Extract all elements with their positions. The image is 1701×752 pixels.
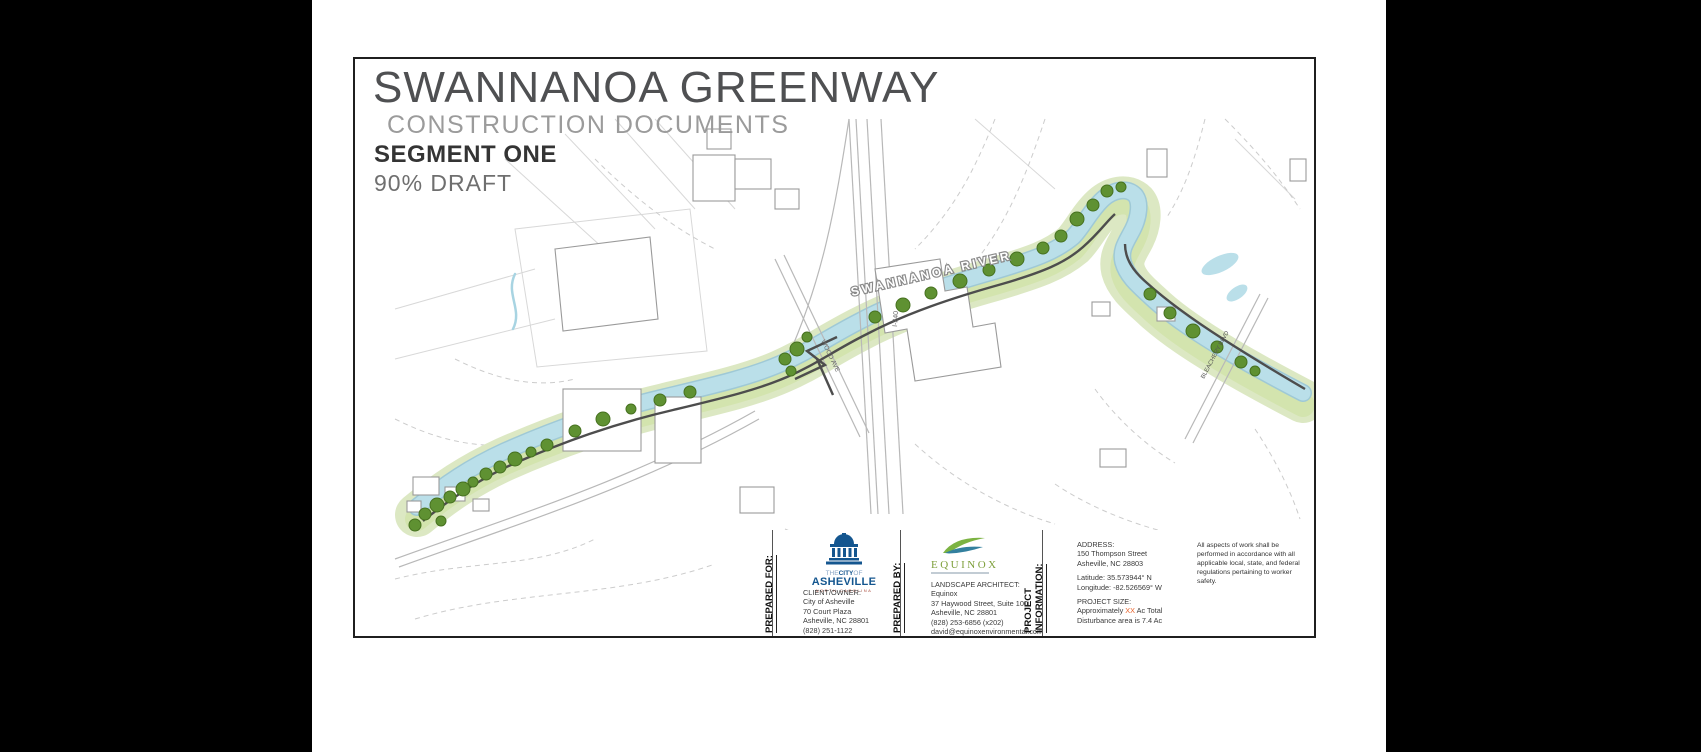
leaf-icon	[941, 534, 987, 554]
client-line: (828) 251-1122	[803, 626, 869, 635]
project-size-label: PROJECT SIZE:	[1077, 597, 1162, 606]
logo-asheville: ASHEVILLE	[805, 577, 883, 588]
equinox-tagline-rule	[931, 572, 989, 574]
draft-status: 90% DRAFT	[374, 170, 512, 197]
city-of-asheville-logo: THECITYOF ASHEVILLE NORTH CAROLINA	[805, 533, 883, 594]
client-line: Asheville, NC 28801	[803, 616, 869, 625]
road-label-i240: I-240	[892, 311, 900, 328]
safety-note-section: All aspects of work shall be performed i…	[1187, 530, 1314, 636]
project-size-line: Approximately XX Ac Total	[1077, 606, 1162, 615]
address-line: Asheville, NC 28803	[1077, 559, 1162, 568]
size-prefix: Approximately	[1077, 606, 1125, 615]
latitude-value: Latitude: 35.573944° N	[1077, 573, 1162, 582]
safety-note-text: All aspects of work shall be performed i…	[1197, 542, 1303, 587]
project-heading-line2: INFORMATION:	[1034, 564, 1045, 633]
size-placeholder-value: XX	[1125, 606, 1135, 615]
equinox-logo: EQUINOX	[931, 534, 999, 574]
prepared-by-section: PREPARED BY: EQUINOX LANDSCAPE ARCHITECT…	[900, 530, 1042, 636]
prepared-by-heading: PREPARED BY:	[892, 563, 905, 633]
size-suffix: Ac Total	[1135, 606, 1162, 615]
client-line: 70 Court Plaza	[803, 607, 869, 616]
project-information-block: ADDRESS: 150 Thompson Street Asheville, …	[1077, 540, 1162, 625]
project-information-section: PROJECT INFORMATION: ADDRESS: 150 Thomps…	[1042, 530, 1187, 636]
prepared-for-heading: PREPARED FOR:	[764, 555, 777, 633]
disturbance-area-line: Disturbance area is 7.4 Ac	[1077, 616, 1162, 625]
document-type-subtitle: CONSTRUCTION DOCUMENTS	[387, 111, 789, 140]
prepared-for-section: PREPARED FOR:	[772, 530, 900, 636]
screenshot-stage: SWANNANOA RIVER WOOD AVE I-240 BLEACHERY…	[0, 0, 1701, 752]
address-line: 150 Thompson Street	[1077, 549, 1162, 558]
project-heading-line1: PROJECT	[1023, 564, 1034, 633]
project-information-heading: PROJECT INFORMATION:	[1023, 564, 1047, 633]
address-label: ADDRESS:	[1077, 540, 1162, 549]
client-owner-label: CLIENT/OWNER:	[803, 588, 869, 597]
longitude-value: Longitude: -82.526569° W	[1077, 583, 1162, 592]
page-background: SWANNANOA RIVER WOOD AVE I-240 BLEACHERY…	[312, 0, 1386, 752]
client-line: City of Asheville	[803, 597, 869, 606]
capitol-building-icon	[826, 533, 862, 565]
drawing-sheet: SWANNANOA RIVER WOOD AVE I-240 BLEACHERY…	[353, 57, 1316, 638]
greenway-corridor	[417, 198, 1303, 519]
segment-label: SEGMENT ONE	[374, 141, 557, 169]
client-owner-block: CLIENT/OWNER: City of Asheville 70 Court…	[803, 588, 869, 635]
project-title: SWANNANOA GREENWAY	[373, 63, 939, 113]
equinox-wordmark: EQUINOX	[931, 559, 999, 571]
